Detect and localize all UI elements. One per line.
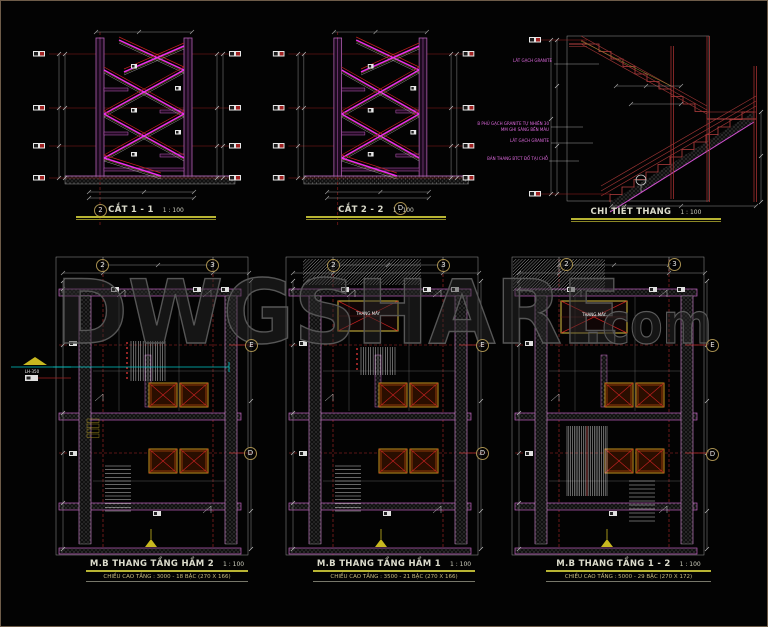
- plan-subtitle: CHIỀU CAO TẦNG : 3000 - 18 BẬC (270 X 16…: [103, 574, 230, 580]
- title-underline: [76, 216, 216, 218]
- stair-detail-drawing: [521, 26, 766, 211]
- title-plan-floor-1-2: M.B THANG TẦNG 1 - 21 : 100 CHIỀU CAO TẦ…: [546, 559, 711, 582]
- title-text: CẮT 1 - 1: [108, 205, 154, 215]
- detail-annotation-4: LÁT GẠCH GRANITE: [494, 139, 549, 144]
- grid-bubble-p1-D: D: [244, 447, 257, 460]
- title-underline-2: [306, 219, 446, 220]
- title-plan-basement-2: M.B THANG TẦNG HẦM 21 : 100 CHIỀU CAO TẦ…: [86, 559, 248, 582]
- subtitle-underline: [313, 581, 475, 582]
- title-underline: [571, 218, 721, 220]
- title-underline-2: [76, 219, 216, 220]
- plan-floor-1-2-drawing: [509, 251, 719, 563]
- shaft-label-plan3: THANG MÁY: [561, 312, 627, 317]
- grid-bubble-p3-2: 2: [560, 258, 573, 271]
- title-detail: CHI TIẾT THANG1 : 100: [571, 207, 721, 222]
- grid-bubble-p3-D: D: [706, 448, 719, 461]
- subtitle-underline: [86, 581, 248, 582]
- grid-bubble-p1-E: E: [245, 339, 258, 352]
- datum-label: LH-350: [17, 369, 47, 374]
- title-text: M.B THANG TẦNG 1 - 2: [556, 559, 670, 569]
- title-plan-basement-1: M.B THANG TẦNG HẦM 11 : 100 CHIỀU CAO TẦ…: [313, 559, 475, 582]
- title-section-2-2: CẮT 2 - 21 : 100: [306, 205, 446, 220]
- title-scale: 1 : 100: [163, 207, 184, 214]
- title-text: M.B THANG TẦNG HẦM 1: [317, 559, 441, 569]
- detail-annotation-2: B PHỦ GẠCH GRANITE TỰ NHIÊN 30: [469, 122, 549, 127]
- plan-subtitle: CHIỀU CAO TẦNG : 3500 - 21 BẬC (270 X 16…: [330, 574, 457, 580]
- subtitle-underline: [546, 581, 711, 582]
- title-scale: 1 : 100: [680, 209, 701, 216]
- grid-bubble-p2-2: 2: [327, 259, 340, 272]
- title-scale: 1 : 100: [393, 207, 414, 214]
- plan-basement-1-drawing: [283, 251, 493, 563]
- title-underline: [86, 570, 248, 572]
- detail-annotation-5: BẢN THANG BTCT ĐỔ TẠI CHỖ: [482, 157, 548, 162]
- title-section-1-1: CẮT 1 - 11 : 100: [76, 205, 216, 220]
- title-underline: [306, 216, 446, 218]
- grid-bubble-p2-3: 3: [437, 259, 450, 272]
- section-1-1-drawing: [29, 26, 251, 211]
- grid-bubble-p2-E: E: [476, 339, 489, 352]
- title-underline-2: [571, 221, 721, 222]
- grid-bubble-p1-2: 2: [96, 259, 109, 272]
- title-scale: 1 : 100: [680, 561, 701, 568]
- grid-bubble-p2-D: D: [476, 447, 489, 460]
- plan-subtitle: CHIỀU CAO TẦNG : 5000 - 29 BẬC (270 X 17…: [565, 574, 692, 580]
- grid-bubble-p1-3: 3: [206, 259, 219, 272]
- title-text: CẮT 2 - 2: [338, 205, 384, 215]
- section-2-2-drawing: [269, 26, 484, 211]
- title-scale: 1 : 100: [223, 561, 244, 568]
- shaft-label-plan2: THANG MÁY: [338, 311, 398, 316]
- datum-arrow-icon: [23, 357, 47, 365]
- detail-annotation-1: LÁT GẠCH GRANITE: [496, 59, 552, 64]
- plan-basement-2-drawing: [53, 251, 263, 563]
- title-text: CHI TIẾT THANG: [591, 207, 672, 217]
- detail-annotation-3: MM GHI SÁNG BỀN MÀU: [479, 128, 549, 133]
- title-underline: [546, 570, 711, 572]
- title-scale: 1 : 100: [450, 561, 471, 568]
- cad-sheet: LH-350 DWGSHARE .com 2 D 2 3 E D 2 3 E D…: [0, 0, 768, 627]
- title-underline: [313, 570, 475, 572]
- grid-bubble-p3-E: E: [706, 339, 719, 352]
- grid-bubble-p3-3: 3: [668, 258, 681, 271]
- title-text: M.B THANG TẦNG HẦM 2: [90, 559, 214, 569]
